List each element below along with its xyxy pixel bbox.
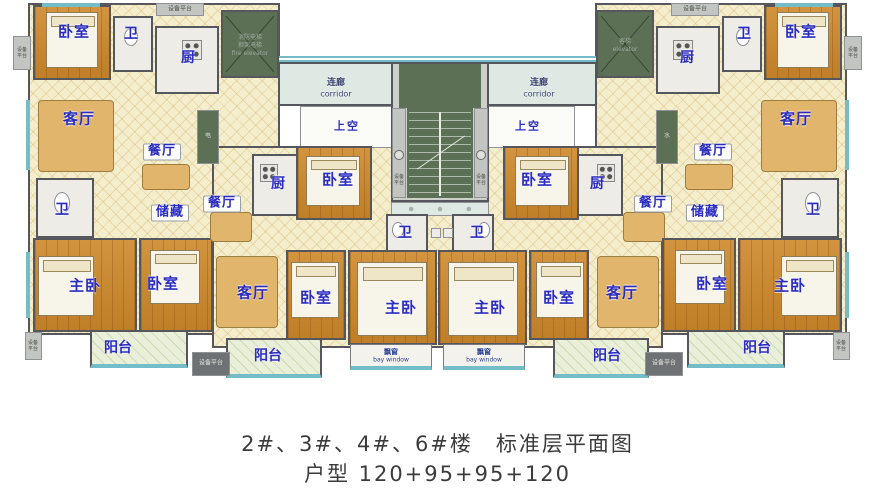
room-label-bathroom: 卫 [737, 26, 751, 42]
room-label-bathroom: 卫 [470, 225, 484, 241]
panel-circle-left [394, 150, 404, 160]
equip-platform-label: 设备平台 [27, 340, 39, 353]
room-label-balcony: 阳台 [593, 348, 621, 364]
equip-platform-label: 设备平台 [652, 361, 676, 368]
corridor-label-en: corridor [320, 89, 351, 98]
room-label-living: 客厅 [606, 284, 638, 301]
equip-platform-label: 设备平台 [835, 340, 847, 353]
fire-elevator: 消防电梯 担架电梯 fire elevator [221, 10, 279, 78]
window-glass [26, 252, 30, 318]
room-label-bathroom: 卫 [55, 202, 69, 218]
dining-table-icon [142, 164, 190, 190]
bay-window-label-en: bay window [373, 358, 409, 365]
room-label-bedroom: 卧室 [785, 23, 817, 40]
passenger-elevator-label-2: elevator [598, 46, 652, 54]
equip-platform-label: 设备平台 [683, 7, 707, 14]
room-label-dining: 餐厅 [203, 196, 241, 213]
room-label-bedroom: 卧室 [147, 275, 179, 292]
bay-window-label-cn: 飘窗 [477, 348, 491, 356]
room-label-bedroom: 卧室 [543, 289, 575, 306]
open-above-label: 上空 [515, 121, 541, 134]
room-label-master: 主卧 [385, 299, 417, 316]
panel-circle-right [476, 150, 486, 160]
room-label-kitchen: 厨 [181, 50, 195, 66]
electric-shaft-label: 电 [205, 134, 211, 141]
room-label-living: 客厅 [780, 110, 812, 127]
room-label-balcony: 阳台 [104, 340, 132, 356]
corridor-label-cn: 连廊 [327, 78, 345, 88]
caption-line2: 户型 120+95+95+120 [0, 458, 875, 488]
room-label-living: 客厅 [237, 284, 269, 301]
equip-platform-label: 设备平台 [16, 47, 28, 60]
room-label-storage: 储藏 [686, 205, 724, 222]
dining-table-icon [210, 212, 252, 242]
dining-table-icon [685, 164, 733, 190]
room-label-balcony: 阳台 [254, 348, 282, 364]
room-label-bedroom: 卧室 [521, 171, 553, 188]
room-label-balcony: 阳台 [743, 340, 771, 356]
fire-elevator-label-1: 消防电梯 [223, 34, 277, 42]
room-label-bedroom: 卧室 [696, 275, 728, 292]
bay-window-label-cn: 飘窗 [384, 348, 398, 356]
corridor-label-cn: 连廊 [530, 78, 548, 88]
room-label-kitchen: 厨 [590, 176, 604, 192]
passenger-elevator-label-1: 客梯 [598, 38, 652, 46]
open-above-label: 上空 [334, 121, 360, 134]
room-label-master: 主卧 [474, 299, 506, 316]
room-label-bedroom: 卧室 [322, 171, 354, 188]
room-label-dining: 餐厅 [694, 144, 732, 161]
room-label-bathroom: 卫 [806, 202, 820, 218]
fire-elevator-label-2: 担架电梯 [223, 42, 277, 50]
floor-plan: 设备平台 设备平台 消防电梯 担架电梯 fire elevator 电 [0, 0, 875, 500]
equip-platform-label: 设备平台 [199, 361, 223, 368]
room-label-dining: 餐厅 [143, 144, 181, 161]
corridor-label-en: corridor [523, 89, 554, 98]
window-glass [845, 100, 849, 170]
equip-platform-label: 设备平台 [847, 47, 859, 60]
room-label-dining: 餐厅 [634, 196, 672, 213]
room-label-master: 主卧 [774, 277, 806, 294]
window-glass [775, 3, 833, 7]
duct-shaft [431, 228, 441, 238]
passenger-elevator: 客梯 elevator [596, 10, 654, 78]
room-label-living: 客厅 [63, 110, 95, 127]
window-glass [26, 100, 30, 170]
room-label-kitchen: 厨 [680, 50, 694, 66]
room-label-bathroom: 卫 [124, 26, 138, 42]
room-label-storage: 储藏 [151, 205, 189, 222]
fire-elevator-label-3: fire elevator [223, 50, 277, 58]
window-glass [42, 3, 100, 7]
room-label-bedroom: 卧室 [300, 289, 332, 306]
room-label-kitchen: 厨 [271, 176, 285, 192]
window-glass [845, 252, 849, 318]
room-label-bathroom: 卫 [398, 225, 412, 241]
water-shaft-label: 水 [664, 134, 670, 141]
duct-shaft [443, 228, 453, 238]
dining-table-icon [623, 212, 665, 242]
equip-platform-stair-right: 设备平台 [475, 174, 487, 187]
equip-platform-stair-left: 设备平台 [393, 174, 405, 187]
bay-window-label-en: bay window [466, 358, 502, 365]
room-label-master: 主卧 [69, 277, 101, 294]
caption-line1: 2#、3#、4#、6#楼 标准层平面图 [0, 428, 875, 458]
equip-platform-label: 设备平台 [168, 7, 192, 14]
room-label-bedroom: 卧室 [58, 23, 90, 40]
